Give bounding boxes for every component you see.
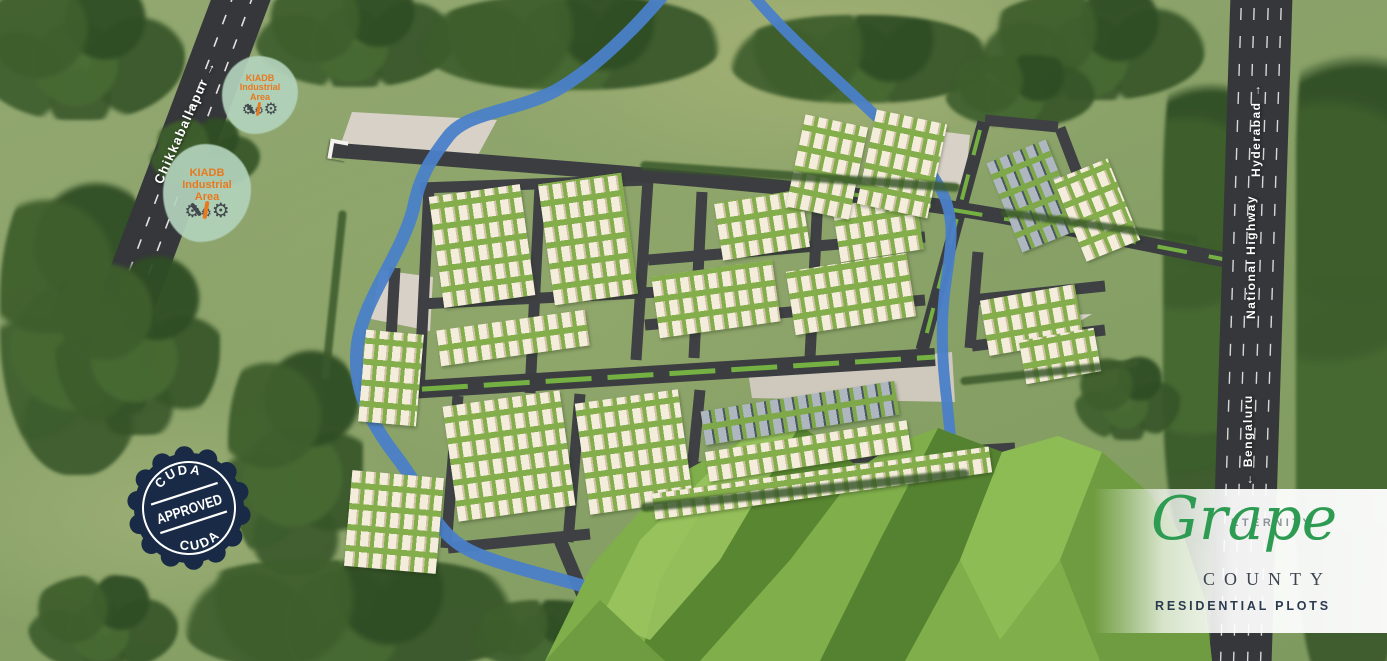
road-label-bengaluru: ← Bengaluru	[1241, 394, 1255, 485]
industry-gears-icon: ⚙⚙⚙	[242, 103, 278, 116]
tree-cluster	[55, 245, 220, 435]
cuda-approved-stamp: CUDA APPROVED CUDA	[124, 443, 254, 573]
street	[970, 252, 978, 348]
housing-block	[538, 173, 638, 306]
brand-logo: ETERNITY Grape COUNTY RESIDENTIAL PLOTS	[1093, 489, 1387, 633]
brand-grape: Grape	[1151, 489, 1337, 549]
hyderabad-label: Hyderabad	[1249, 101, 1263, 177]
bengaluru-label: Bengaluru	[1241, 394, 1255, 467]
street	[636, 180, 648, 360]
gear-icon: ⚙	[212, 203, 230, 219]
housing-block	[358, 330, 424, 427]
kiadb-line1: KIADB	[182, 167, 232, 179]
kiadb-marker-small: KIADB Industrial Area ⚙⚙⚙	[222, 56, 298, 134]
housing-block	[443, 390, 576, 521]
industry-gears-icon: ⚙⚙⚙	[184, 203, 229, 219]
brand-tagline: RESIDENTIAL PLOTS	[1155, 599, 1331, 613]
arrow-up-road-icon: →	[1249, 83, 1263, 97]
national-highway-label: National Highway	[1244, 195, 1258, 319]
entrance-gate	[327, 139, 348, 162]
masterplan-map: Chikkaballapur → Hyderabad → National Hi…	[0, 0, 1387, 661]
street	[985, 120, 1058, 127]
housing-block	[344, 470, 444, 574]
road-label-national-highway: National Highway	[1244, 195, 1258, 319]
housing-block	[429, 184, 536, 308]
kiadb-marker-large: KIADB Industrial Area ⚙⚙⚙	[163, 144, 251, 242]
kiadb-text: KIADB Industrial Area	[182, 167, 232, 203]
road-label-hyderabad: Hyderabad →	[1249, 83, 1263, 177]
street	[692, 390, 700, 470]
gear-icon: ⚙	[264, 103, 278, 116]
brand-county: COUNTY	[1203, 569, 1332, 590]
kiadb-line2: Industrial	[182, 179, 232, 191]
